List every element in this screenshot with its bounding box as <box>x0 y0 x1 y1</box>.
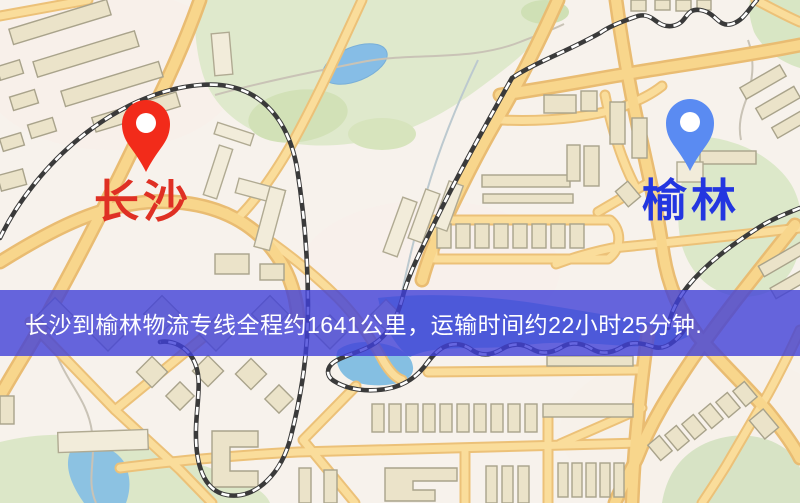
route-info-text: 长沙到榆林物流专线全程约1641公里，运输时间约22小时25分钟. <box>25 306 702 340</box>
destination-city-label: 榆林 <box>642 179 740 224</box>
map-canvas <box>0 0 800 503</box>
logistics-route-map: 长沙 榆林 长沙到榆林物流专线全程约1641公里，运输时间约22小时25分钟. <box>0 0 800 503</box>
origin-city-label: 长沙 <box>94 180 192 225</box>
pin-hole <box>136 113 156 133</box>
route-info-banner: 长沙到榆林物流专线全程约1641公里，运输时间约22小时25分钟. <box>0 290 800 356</box>
pin-hole <box>680 112 700 132</box>
